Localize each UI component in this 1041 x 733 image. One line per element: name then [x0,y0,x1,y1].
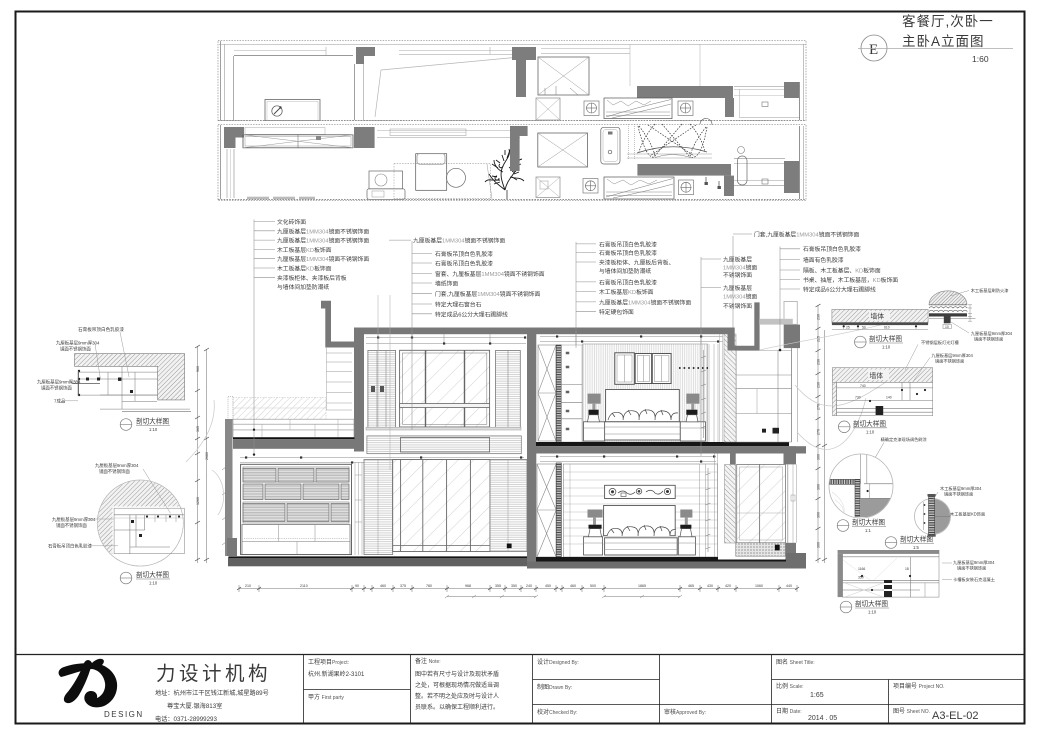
svg-text:375: 375 [400,584,406,588]
svg-text:力设计机构: 力设计机构 [156,663,271,685]
svg-text:355: 355 [495,584,501,588]
svg-text:工程项目Project:: 工程项目Project: [308,658,349,666]
svg-text:剖切大样图: 剖切大样图 [853,419,886,428]
svg-text:门套,九厘板基层1MM304镜面不锈钢饰面: 门套,九厘板基层1MM304镜面不锈钢饰面 [435,290,541,298]
svg-text:九厘板基层9mm厚304: 九厘板基层9mm厚304 [56,340,100,347]
svg-text:960: 960 [196,366,200,372]
svg-text:剖切大样图: 剖切大样图 [852,518,885,527]
svg-text:木工板基层KD饰面: 木工板基层KD饰面 [950,511,985,518]
svg-text:300: 300 [817,454,821,460]
svg-text:夹漆板柜体、夹漆板后背板: 夹漆板柜体、夹漆板后背板 [277,274,347,282]
svg-text:镜面不锈钢饰面: 镜面不锈钢饰面 [957,565,986,572]
svg-text:270: 270 [817,429,821,435]
svg-text:270: 270 [817,404,821,410]
svg-text:石膏板吊顶白色乳胶漆: 石膏板吊顶白色乳胶漆 [435,260,493,268]
svg-text:九厘板基层: 九厘板基层 [723,284,752,292]
svg-text:DESIGN: DESIGN [104,710,144,719]
svg-text:460: 460 [570,584,576,588]
svg-text:制图Drawn By:: 制图Drawn By: [537,683,572,691]
svg-text:木工板基层KD板饰面: 木工板基层KD板饰面 [277,246,332,254]
svg-text:1:10: 1:10 [866,429,875,434]
svg-text:石膏板吊顶白色乳胶漆: 石膏板吊顶白色乳胶漆 [435,250,493,258]
svg-text:210: 210 [245,584,251,588]
svg-text:夹漆板柜体、九厘板后背板、: 夹漆板柜体、九厘板后背板、 [599,259,674,267]
svg-text:图名 Sheet Title:: 图名 Sheet Title: [776,658,815,666]
svg-text:图中若有尺寸与设计及现状矛盾: 图中若有尺寸与设计及现状矛盾 [415,670,499,678]
svg-text:1MM304镜面: 1MM304镜面 [723,292,757,300]
svg-text:甲方 First party: 甲方 First party [308,693,344,701]
svg-text:2110: 2110 [300,584,308,588]
svg-text:墙纸饰面: 墙纸饰面 [435,280,458,288]
svg-text:比例 Scale:: 比例 Scale: [776,682,804,690]
svg-text:墙体: 墙体 [871,312,885,321]
svg-text:备注 Note:: 备注 Note: [415,657,441,665]
svg-text:剖切大样图: 剖切大样图 [136,417,169,426]
svg-text:日期 Date:: 日期 Date: [776,707,802,715]
svg-text:430: 430 [707,584,713,588]
svg-text:740: 740 [860,384,866,388]
svg-text:整。若不明之处应及时与设计人: 整。若不明之处应及时与设计人 [415,692,499,700]
svg-text:主卧A立面图: 主卧A立面图 [902,34,985,49]
svg-text:石膏板吊顶白色乳胶漆: 石膏板吊顶白色乳胶漆 [599,240,657,248]
svg-text:不锈钢层板灯光灯槽: 不锈钢层板灯光灯槽 [921,339,960,346]
svg-text:九厘板基层9mm厚304: 九厘板基层9mm厚304 [37,379,81,386]
svg-text:杭州.新湖果岭2-3101: 杭州.新湖果岭2-3101 [308,670,365,678]
svg-text:225: 225 [817,336,821,342]
svg-text:18: 18 [905,567,909,571]
svg-text:九厘板基层1MM304镜面不锈钢饰面: 九厘板基层1MM304镜面不锈钢饰面 [277,237,369,245]
svg-text:2014 . 05: 2014 . 05 [808,715,837,722]
svg-text:窗套、九厘板基层1MM304镜面不锈钢饰面: 窗套、九厘板基层1MM304镜面不锈钢饰面 [435,270,545,278]
svg-text:300: 300 [817,542,821,548]
svg-text:九厘板基层: 九厘板基层 [723,255,752,263]
svg-text:230: 230 [817,314,821,320]
svg-text:350: 350 [858,576,864,580]
svg-text:E: E [869,42,878,58]
svg-text:镜面不锈钢饰面: 镜面不锈钢饰面 [56,522,87,529]
svg-text:石膏板吊顶白色乳胶漆: 石膏板吊顶白色乳胶漆 [599,278,657,286]
svg-text:九厘板基层1MM304镜面不锈钢饰面: 九厘板基层1MM304镜面不锈钢饰面 [413,237,505,245]
svg-text:465: 465 [688,584,694,588]
svg-text:剖切大样图: 剖切大样图 [855,599,888,608]
svg-text:1060: 1060 [755,584,763,588]
svg-text:墙面有色乳胶漆: 墙面有色乳胶漆 [803,256,844,264]
svg-text:1:10: 1:10 [149,581,158,586]
svg-text:780: 780 [426,584,432,588]
svg-text:项目编号 Project NO.: 项目编号 Project NO. [893,682,945,690]
svg-text:审核Approved By:: 审核Approved By: [664,708,706,716]
svg-text:剖切大样图: 剖切大样图 [869,334,902,343]
svg-text:书桌、抽屉，木工板基层，KD板饰面: 书桌、抽屉，木工板基层，KD板饰面 [803,276,898,284]
svg-text:420: 420 [725,584,731,588]
svg-text:特定硬包饰面: 特定硬包饰面 [599,308,634,316]
svg-text:1:65: 1:65 [810,692,824,699]
svg-text:镜面不锈钢饰面: 镜面不锈钢饰面 [99,468,130,475]
svg-text:文化砖饰面: 文化砖饰面 [277,218,306,226]
svg-text:剖切大样图: 剖切大样图 [900,535,933,544]
svg-text:校对Checked By:: 校对Checked By: [537,708,577,716]
svg-text:不锈钢饰面: 不锈钢饰面 [723,271,752,279]
svg-text:九厘板基层9mm厚304: 九厘板基层9mm厚304 [95,462,139,469]
svg-text:镜面不锈钢饰面: 镜面不锈钢饰面 [41,385,72,392]
svg-text:140: 140 [886,396,892,400]
svg-text:1:1: 1:1 [865,528,871,533]
svg-text:240: 240 [526,584,532,588]
svg-text:1MM304镜面: 1MM304镜面 [723,264,757,272]
svg-text:石膏板吊顶白色乳胶漆: 石膏板吊顶白色乳胶漆 [599,249,657,257]
svg-text:440: 440 [786,584,792,588]
svg-text:1260: 1260 [196,497,200,505]
svg-text:图号 Sheet NO.: 图号 Sheet NO. [893,708,930,715]
svg-text:230: 230 [817,382,821,388]
svg-text:木工板基层KD板饰面: 木工板基层KD板饰面 [277,265,332,273]
svg-text:1:5: 1:5 [913,545,919,550]
svg-text:墙体: 墙体 [870,371,884,380]
svg-text:木工板基层KD板饰面: 木工板基层KD板饰面 [599,288,654,296]
svg-text:300: 300 [817,484,821,490]
svg-text:尊宝大厦.银海813室: 尊宝大厦.银海813室 [167,702,222,710]
svg-text:1:60: 1:60 [972,54,989,64]
svg-text:设计Designed By:: 设计Designed By: [537,658,579,666]
svg-text:10: 10 [945,325,949,329]
svg-text:500: 500 [590,584,596,588]
svg-text:电话：0371-28999293: 电话：0371-28999293 [155,715,217,723]
svg-text:特定成品6公分大理石踢脚线: 特定成品6公分大理石踢脚线 [803,285,876,293]
svg-text:卡槽板安装石克混凝土: 卡槽板安装石克混凝土 [953,576,995,583]
svg-text:石膏板吊顶白色乳胶漆: 石膏板吊顶白色乳胶漆 [48,543,93,550]
svg-text:镜面不锈钢饰面: 镜面不锈钢饰面 [944,491,973,498]
svg-text:隔板、木工板基层、KD板饰面: 隔板、木工板基层、KD板饰面 [803,266,881,274]
svg-text:450: 450 [545,584,551,588]
svg-text:地址：杭州市江干区钱江新城,城星路89号: 地址：杭州市江干区钱江新城,城星路89号 [155,689,269,697]
svg-text:1:10: 1:10 [882,345,891,350]
svg-text:剖切大样图: 剖切大样图 [136,570,169,579]
svg-text:90: 90 [355,584,359,588]
svg-text:1:10: 1:10 [149,427,158,432]
svg-text:365: 365 [196,426,200,432]
svg-text:员联系。以确保工程顺利进行。: 员联系。以确保工程顺利进行。 [415,703,499,711]
svg-text:与墙体间加垫防潮纸: 与墙体间加垫防潮纸 [599,267,651,275]
svg-text:九厘板基层1MM304镜面不锈钢饰面: 九厘板基层1MM304镜面不锈钢饰面 [277,227,369,235]
svg-text:石膏板吊顶白色乳胶漆: 石膏板吊顶白色乳胶漆 [803,245,861,253]
svg-text:精确定克漆现场调色刷涂: 精确定克漆现场调色刷涂 [881,436,928,443]
svg-text:镜面不锈钢饰面: 镜面不锈钢饰面 [974,336,1003,343]
svg-text:与墙体间加垫防潮纸: 与墙体间加垫防潮纸 [277,283,329,291]
svg-text:230: 230 [817,359,821,365]
svg-text:2680: 2680 [205,452,209,460]
svg-text:不锈钢饰面: 不锈钢饰面 [723,302,752,310]
svg-text:客餐厅,次卧一: 客餐厅,次卧一 [902,13,994,29]
svg-text:木工板基层刷防火漆: 木工板基层刷防火漆 [971,287,1009,294]
svg-text:门套,九厘板基层1MM304镜面不锈钢饰面: 门套,九厘板基层1MM304镜面不锈钢饰面 [754,231,860,239]
svg-text:1865: 1865 [638,584,646,588]
svg-text:460: 460 [380,584,386,588]
svg-text:1:10: 1:10 [868,610,877,615]
svg-text:九厘板基层9mm厚304: 九厘板基层9mm厚304 [52,516,96,523]
svg-text:968: 968 [465,584,471,588]
svg-text:特定大理石窗台石: 特定大理石窗台石 [435,301,482,309]
svg-text:300: 300 [817,512,821,518]
svg-text:610: 610 [884,326,890,330]
svg-text:镜面不锈钢饰面: 镜面不锈钢饰面 [60,346,91,353]
svg-text:之处，可根据现场情况做适当调: 之处，可根据现场情况做适当调 [415,681,499,689]
svg-text:石膏板吊顶白色乳胶漆: 石膏板吊顶白色乳胶漆 [78,326,124,333]
svg-text:镜面不锈钢饰面: 镜面不锈钢饰面 [935,358,964,365]
svg-text:九厘板基层1MM304镜面不锈钢饰面: 九厘板基层1MM304镜面不锈钢饰面 [599,298,691,306]
svg-text:九厘板基层1MM304镜面不锈钢饰面: 九厘板基层1MM304镜面不锈钢饰面 [277,255,369,263]
svg-text:1166: 1166 [858,567,865,571]
svg-text:350: 350 [511,584,517,588]
svg-text:特定成品6公分大理石踢脚线: 特定成品6公分大理石踢脚线 [435,310,508,318]
svg-text:730: 730 [855,396,861,400]
svg-text:A3-EL-02: A3-EL-02 [932,710,978,722]
svg-text:50: 50 [862,326,866,330]
svg-text:25: 25 [846,326,850,330]
